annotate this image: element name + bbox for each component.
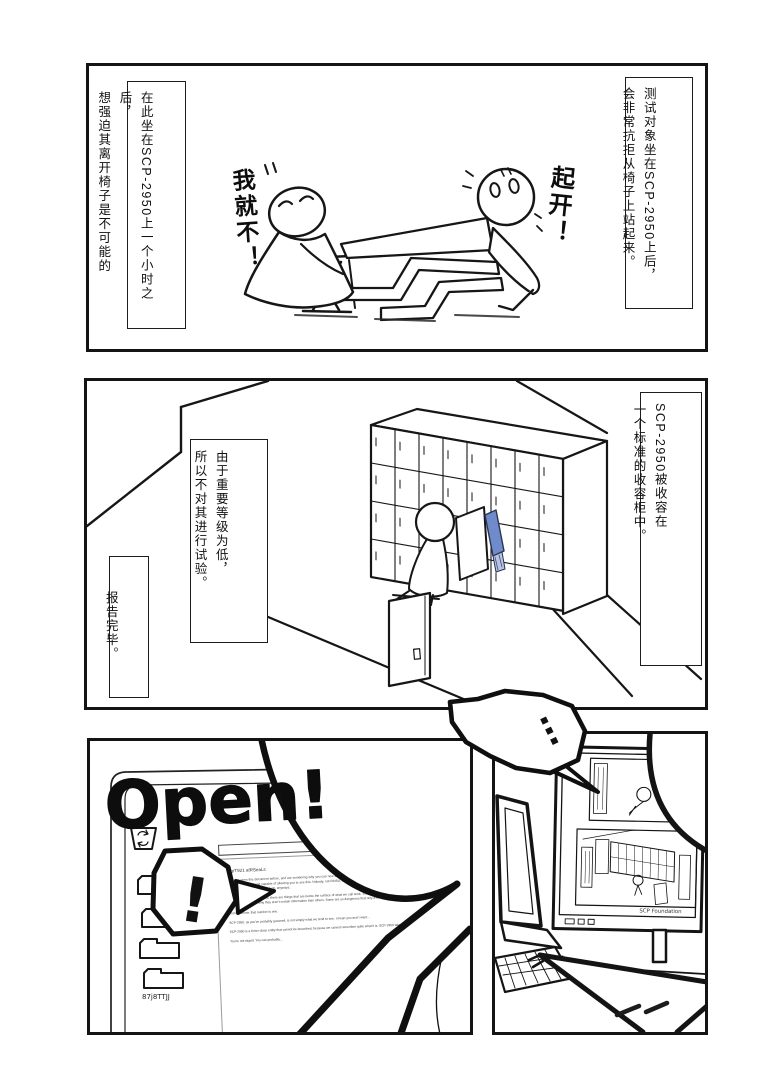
room-door bbox=[389, 593, 430, 686]
panel3-overlay: Open! ! bbox=[90, 741, 470, 1032]
laptop bbox=[497, 796, 561, 948]
speech-text-refuse: 我就不！ bbox=[224, 167, 265, 273]
locker-cabinet bbox=[371, 409, 607, 614]
open-locker-door bbox=[456, 507, 488, 580]
caption-text: 由于重要等级为低， 所以不对其进行试验。 bbox=[193, 450, 228, 590]
panel-3: 87j8TTJJ ©grT921 afRSeaLs If you've seen… bbox=[87, 738, 473, 1035]
open-scrawl-text: Open! bbox=[103, 756, 332, 845]
caption-box-containment: SCP-2950被收容在 一个标准的收容柜中。 bbox=[640, 392, 702, 666]
ellipsis-bubble: … bbox=[438, 680, 613, 802]
caption-text: SCP-2950被收容在 一个标准的收容柜中。 bbox=[632, 403, 667, 543]
monitor-stand bbox=[653, 930, 666, 962]
puller-legs bbox=[343, 258, 503, 320]
comic-page: { "page": { "background": "#ffffff", "in… bbox=[0, 0, 777, 1090]
caption-text: 报告完毕。 bbox=[104, 591, 118, 661]
exclamation-bubble: ! bbox=[153, 849, 274, 939]
panel2-artwork-containment-room bbox=[87, 381, 705, 707]
arm bbox=[529, 955, 705, 1032]
caption-text: 测试对象坐在SCP-2950上后， 会非常抗拒从椅子上站起来。 bbox=[621, 87, 656, 283]
panel-2 bbox=[84, 378, 708, 710]
screen-caption: SCP Foundation bbox=[639, 908, 681, 915]
caption-box-one-hour: 在此坐在SCP-2950上一个小时之后， 想强迫其离开椅子是不可能的 bbox=[127, 81, 186, 329]
caption-box-test-subject: 测试对象坐在SCP-2950上后， 会非常抗拒从椅子上站起来。 bbox=[625, 77, 693, 309]
caption-box-report-end: 报告完毕。 bbox=[109, 556, 149, 698]
caption-box-low-priority: 由于重要等级为低， 所以不对其进行试验。 bbox=[190, 439, 268, 643]
